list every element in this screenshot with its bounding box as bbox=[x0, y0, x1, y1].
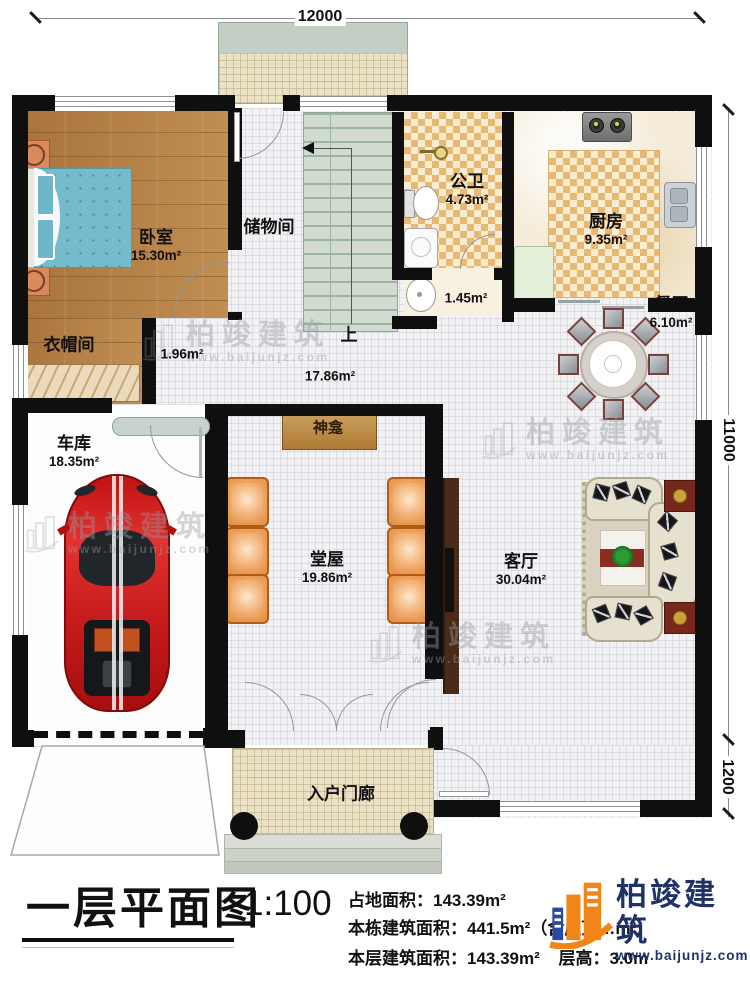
kitchen-sink-basin-icon bbox=[670, 188, 688, 204]
land-area-text: 占地面积：143.39m² bbox=[348, 886, 506, 911]
car-engine-part-icon bbox=[120, 628, 140, 652]
tv-icon bbox=[445, 548, 454, 612]
faucet-icon bbox=[434, 146, 448, 160]
kitchen-sink-basin-icon bbox=[670, 206, 688, 222]
window bbox=[696, 335, 711, 420]
room-label-kitchen: 厨房9.35m² bbox=[585, 211, 628, 249]
top-porch-band bbox=[219, 23, 407, 54]
window bbox=[500, 801, 640, 816]
wall bbox=[640, 800, 712, 817]
wall bbox=[695, 95, 712, 147]
car-windshield bbox=[79, 530, 155, 586]
stairs-up-label: 上 bbox=[341, 324, 358, 345]
side-table-lamp-icon bbox=[673, 611, 687, 625]
brand-logo: 柏竣建筑 www.baijunjz.com bbox=[548, 877, 750, 963]
car-engine-part-icon bbox=[102, 660, 132, 688]
window bbox=[696, 147, 711, 247]
bed-pillow bbox=[36, 174, 55, 216]
brand-name: 柏竣建筑 bbox=[616, 877, 750, 948]
room-label-cloakroom: 衣帽间 bbox=[44, 334, 95, 355]
washing-machine-door-icon bbox=[411, 237, 431, 257]
stove-knob-icon bbox=[615, 122, 619, 126]
title-underline-thin bbox=[22, 947, 234, 948]
brand-logo-icon bbox=[548, 877, 613, 949]
room-label-porch: 入户门廊 bbox=[307, 783, 375, 804]
floor-area-value: 本层建筑面积：143.39m² bbox=[348, 949, 540, 968]
shrine-label: 神龛 bbox=[313, 420, 343, 439]
wall bbox=[695, 420, 712, 817]
window bbox=[300, 96, 387, 111]
window bbox=[13, 505, 28, 635]
entrance-door-post bbox=[430, 727, 443, 750]
dimension-right-value: 11000 bbox=[719, 415, 737, 465]
wall bbox=[175, 95, 235, 111]
sofa-pillow bbox=[615, 603, 633, 621]
hall-chair bbox=[225, 574, 269, 624]
dining-chair bbox=[558, 354, 579, 375]
title-underline bbox=[22, 938, 234, 942]
room-label-living: 客厅30.04m² bbox=[496, 551, 546, 589]
porch-column bbox=[400, 812, 428, 840]
plant-icon bbox=[612, 546, 633, 567]
wall bbox=[228, 404, 443, 416]
room-label-bathroom: 公卫4.73m² bbox=[446, 171, 489, 209]
room-label-storage: 储物间 bbox=[244, 216, 295, 237]
car-racing-stripe bbox=[119, 476, 123, 710]
driveway bbox=[8, 744, 226, 858]
room-label-tangwu: 堂屋19.86m² bbox=[302, 549, 352, 587]
toilet-bowl bbox=[413, 186, 439, 220]
dining-table-center-icon bbox=[604, 355, 622, 373]
door-leaf bbox=[439, 791, 489, 797]
dimension-right-lower-value: 1200 bbox=[718, 756, 736, 798]
side-table-lamp-icon bbox=[673, 489, 687, 503]
room-label-dining: 餐厅6.10m² bbox=[650, 294, 693, 332]
stair-guide-line-v bbox=[351, 148, 352, 324]
wall bbox=[387, 95, 712, 111]
wall bbox=[502, 112, 514, 322]
wall bbox=[228, 730, 245, 748]
room-label-garage: 车库18.35m² bbox=[49, 433, 99, 471]
car-racing-stripe bbox=[112, 476, 116, 710]
room-label-bedroom: 卧室15.30m² bbox=[131, 227, 181, 265]
plan-scale: 1:100 bbox=[244, 884, 332, 924]
kitchen-slider-door bbox=[558, 300, 600, 303]
garage-door-dashed bbox=[34, 731, 203, 738]
wall bbox=[12, 398, 28, 505]
wall bbox=[12, 95, 28, 345]
wall bbox=[425, 404, 443, 679]
stair-divider bbox=[330, 112, 331, 330]
dimension-top-value: 12000 bbox=[295, 8, 346, 26]
dimension-line-top bbox=[35, 18, 700, 19]
window bbox=[13, 345, 28, 398]
room-label-wash: 1.45m² bbox=[445, 291, 488, 308]
car bbox=[64, 474, 170, 712]
wall bbox=[392, 268, 432, 280]
floor-plan-canvas: 神龛 bbox=[0, 0, 750, 981]
window bbox=[55, 96, 175, 111]
wall bbox=[392, 316, 437, 329]
room-label-hallway: 17.86m² bbox=[305, 369, 355, 386]
wall bbox=[430, 800, 500, 817]
hall-chair bbox=[225, 477, 269, 527]
wall bbox=[502, 298, 555, 312]
stove-knob-icon bbox=[594, 122, 598, 126]
wall bbox=[12, 398, 112, 413]
wash-sink-drain-icon bbox=[417, 292, 422, 297]
wall bbox=[142, 318, 156, 404]
brand-url: www.baijunjz.com bbox=[616, 948, 750, 963]
stair-arrow-icon bbox=[302, 142, 314, 154]
wall bbox=[205, 404, 228, 745]
dining-chair bbox=[648, 354, 669, 375]
bed-pillow bbox=[36, 218, 55, 260]
top-porch bbox=[218, 22, 408, 104]
plan-title: 一层平面图 bbox=[26, 872, 261, 936]
wall bbox=[228, 312, 242, 320]
hall-chair bbox=[225, 527, 269, 577]
dining-chair bbox=[603, 399, 624, 420]
door-leaf bbox=[199, 427, 202, 477]
porch-column bbox=[230, 812, 258, 840]
wall bbox=[283, 95, 300, 111]
room-label-corridor: 1.96m² bbox=[161, 347, 204, 364]
door-leaf bbox=[234, 112, 240, 162]
car-engine-part-icon bbox=[94, 628, 114, 652]
cloakroom-rack bbox=[20, 364, 140, 402]
stair-guide-line-h bbox=[312, 148, 352, 149]
wall bbox=[695, 247, 712, 335]
fridge bbox=[514, 246, 554, 300]
wall bbox=[392, 112, 404, 268]
dining-chair bbox=[603, 308, 624, 329]
